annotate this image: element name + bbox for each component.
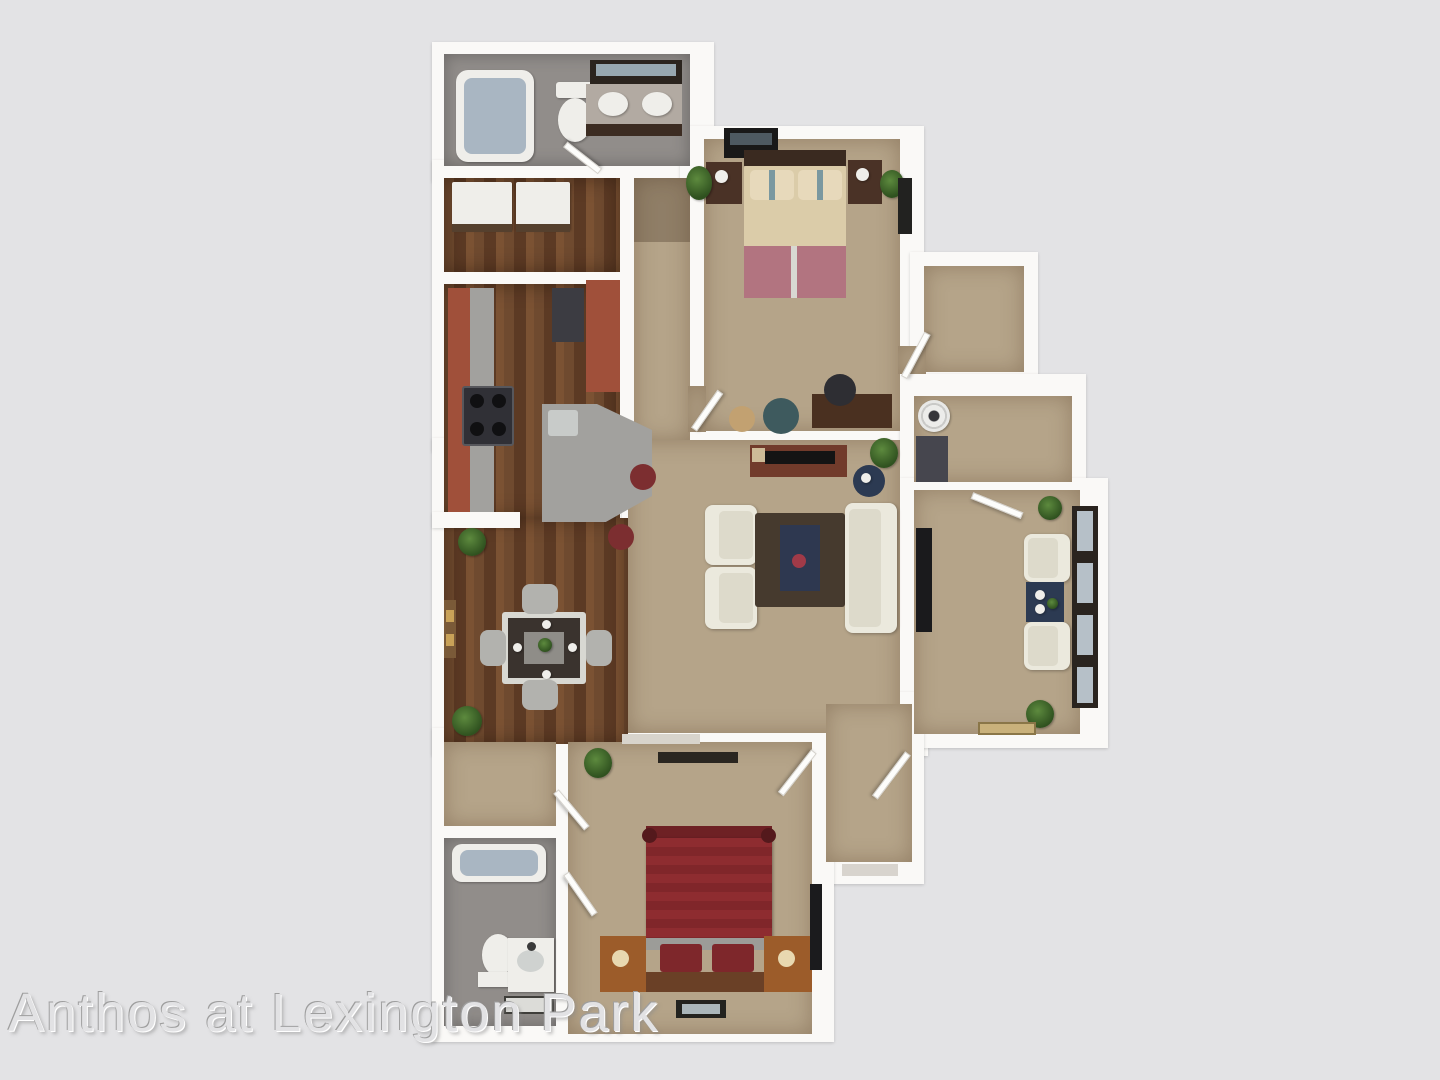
master-tv-screen — [730, 133, 772, 145]
closet-shelf-left-front — [452, 224, 512, 232]
dining-plant-south — [452, 706, 482, 736]
dining-chair-south — [522, 680, 558, 710]
den-plant-north — [1038, 496, 1062, 520]
dining-plate-east — [568, 643, 577, 652]
basket-tan — [729, 406, 755, 432]
bar-stool-2 — [608, 524, 634, 550]
dining-plant-north — [458, 528, 486, 556]
hallway-shadow — [634, 178, 690, 242]
armchair-2-cushion — [719, 573, 753, 623]
vanity2-sink — [517, 950, 544, 972]
bathtub2-basin — [460, 850, 538, 876]
master-lamp-right — [856, 168, 869, 181]
vanity1-sink-left — [598, 92, 628, 116]
den-doormat — [978, 722, 1036, 735]
media-console-box — [752, 448, 765, 462]
den-chair-2-cushion — [1028, 626, 1058, 666]
vanity1-mirror-glass — [596, 64, 676, 76]
washing-machine — [918, 400, 950, 432]
stove-burner-3 — [470, 422, 484, 436]
wall-kitchen-stub — [432, 512, 520, 528]
vanity2-faucet — [527, 942, 536, 951]
master-lamp-left — [715, 170, 728, 183]
closet-shelf-right — [516, 182, 570, 230]
den-chair-1-cushion — [1028, 538, 1058, 578]
side-table-cup — [861, 473, 871, 483]
floor-closet2 — [444, 742, 556, 826]
den-table-plant — [1047, 598, 1058, 609]
bedroom2-wall-tv — [810, 884, 822, 970]
bed2-candle-left — [612, 950, 629, 967]
bedroom2-window-ledge — [658, 752, 738, 763]
den-cup-1 — [1035, 590, 1045, 600]
dining-chair-north — [522, 584, 558, 614]
dining-plate-south — [542, 670, 551, 679]
bed2-cushion-left — [660, 944, 702, 972]
media-console-tv — [765, 451, 835, 464]
bedroom2-plant — [584, 748, 612, 778]
vanity1-cabinet-edge — [586, 124, 682, 136]
armchair-1-cushion — [719, 511, 753, 559]
master-nightstand-right — [848, 160, 882, 204]
stove-burner-1 — [470, 394, 484, 408]
bed2-candle-right — [778, 950, 795, 967]
master-blanket-stripe — [791, 246, 797, 298]
dining-patio-door — [444, 600, 456, 658]
dining-centerpiece-plant — [538, 638, 552, 652]
refrigerator — [552, 288, 584, 342]
kitchen-cabinet-column — [586, 280, 620, 392]
dining-plate-north — [542, 620, 551, 629]
patio-door-handle-top — [446, 610, 454, 622]
bedroom2-doorway-threshold — [622, 734, 700, 744]
closet-shelf-left — [452, 182, 512, 230]
den-tv-unit — [916, 528, 932, 632]
kitchen-sink — [548, 410, 578, 436]
dining-chair-east — [586, 630, 612, 666]
floor-entry-hall — [826, 704, 912, 862]
master-wall-dresser — [898, 178, 912, 234]
stove-burner-2 — [492, 394, 506, 408]
bed2-post-right — [761, 828, 776, 843]
bed2-post-left — [642, 828, 657, 843]
master-plant-left — [686, 166, 712, 200]
stove — [462, 386, 514, 446]
vanity1-sink-right — [642, 92, 672, 116]
dining-chair-west — [480, 630, 506, 666]
stove-burner-4 — [492, 422, 506, 436]
coffee-table-flowers — [792, 554, 806, 568]
greatroom-plant — [870, 438, 898, 468]
den-table — [1026, 582, 1064, 622]
bar-stool-1 — [630, 464, 656, 490]
dining-plate-west — [513, 643, 522, 652]
entry-door-threshold — [842, 864, 898, 876]
office-chair — [824, 374, 856, 406]
laundry-unit — [916, 436, 948, 482]
bedroom2-wall-art-inner — [682, 1004, 720, 1014]
floor-storage — [924, 266, 1024, 372]
master-pillow-stripe-left — [769, 170, 775, 200]
basket-teal — [763, 398, 799, 434]
sofa-cushions — [849, 509, 881, 627]
watermark-text: Anthos at Lexington Park — [8, 982, 659, 1044]
patio-door-handle-bottom — [446, 634, 454, 646]
master-headboard — [744, 150, 846, 166]
den-window-wall — [1072, 506, 1098, 708]
bed2-cushion-right — [712, 944, 754, 972]
apartment-floor-plan-rendering — [0, 0, 1440, 1080]
master-pillow-stripe-right — [817, 170, 823, 200]
closet-shelf-right-front — [516, 224, 570, 232]
bathtub1-basin — [464, 78, 526, 154]
bed2-quilt — [646, 838, 772, 940]
den-cup-2 — [1035, 604, 1045, 614]
